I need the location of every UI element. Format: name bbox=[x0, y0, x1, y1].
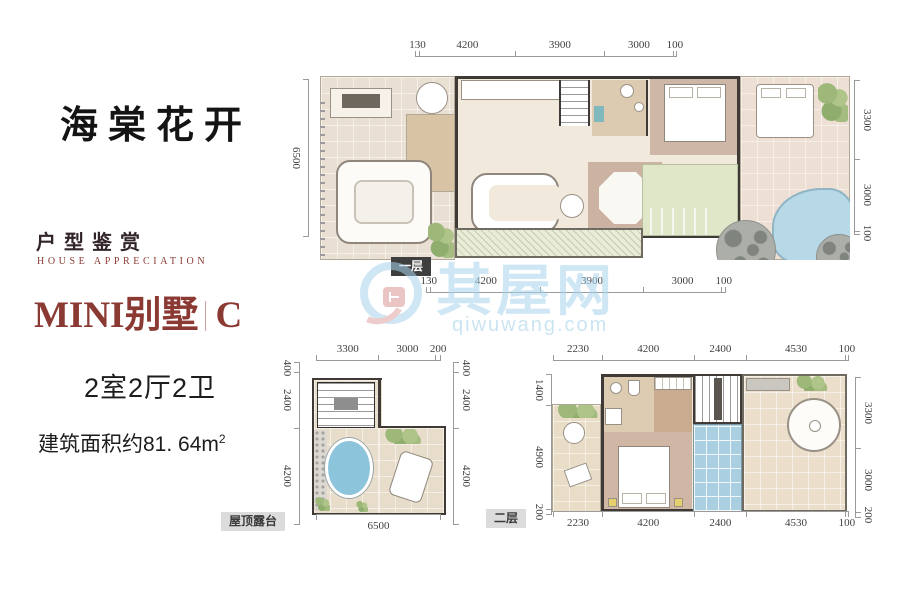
floorplan-page: { "page": { "background": "#ffffff" }, "… bbox=[0, 0, 900, 600]
dim-label: 6500 bbox=[290, 147, 302, 169]
dim-label: 3000 bbox=[628, 39, 650, 51]
floor2-left-ruler: 14004900200 bbox=[538, 374, 552, 515]
floor1-label-badge: 一层 bbox=[391, 257, 431, 276]
yard-fence bbox=[320, 102, 325, 260]
roof-plants bbox=[356, 500, 368, 512]
nightstand bbox=[608, 498, 617, 507]
dim-segment: 3300 bbox=[854, 80, 860, 159]
planting-strip bbox=[455, 228, 643, 258]
roof-notch-wall bbox=[378, 378, 381, 428]
dim-label: 100 bbox=[861, 225, 873, 242]
pillow bbox=[646, 493, 666, 504]
dim-label: 3000 bbox=[862, 469, 874, 491]
floor1-right-ruler: 33003000100 bbox=[854, 80, 868, 235]
dim-label: 6500 bbox=[368, 520, 390, 532]
terrace-plants bbox=[818, 78, 848, 122]
floor2-top-ruler: 2230420024004530100 bbox=[553, 344, 849, 361]
living-sofa-inner bbox=[489, 185, 561, 221]
dim-label: 100 bbox=[839, 343, 856, 355]
dim-segment: 200 bbox=[855, 512, 861, 518]
dim-label: 3000 bbox=[671, 275, 693, 287]
dim-label: 4900 bbox=[533, 446, 545, 468]
dim-label: 3300 bbox=[862, 402, 874, 424]
dim-label: 4200 bbox=[637, 343, 659, 355]
dim-label: 200 bbox=[533, 504, 545, 521]
yard-table bbox=[342, 94, 380, 108]
dim-segment: 2400 bbox=[694, 355, 747, 361]
floor1-top-ruler: 130420039003000100 bbox=[415, 40, 677, 57]
dim-label: 4200 bbox=[456, 39, 478, 51]
shower-tray bbox=[594, 106, 604, 122]
hallway-floor2 bbox=[654, 390, 692, 432]
rooms-summary: 2室2厅2卫 bbox=[84, 366, 216, 405]
floor2-label-badge: 二层 bbox=[486, 509, 526, 528]
dim-segment: 3300 bbox=[316, 355, 378, 361]
dim-segment: 4200 bbox=[294, 428, 300, 525]
dim-label: 100 bbox=[839, 517, 856, 529]
dim-segment: 2230 bbox=[553, 355, 602, 361]
unit-title: MINI别墅C bbox=[34, 284, 242, 338]
dim-label: 4530 bbox=[785, 517, 807, 529]
building-area-text: 建筑面积约81. 64m2 bbox=[38, 428, 226, 458]
dim-segment: 400 bbox=[294, 362, 300, 372]
dim-segment: 4200 bbox=[453, 428, 459, 525]
wardrobe bbox=[654, 377, 692, 390]
balcony-table bbox=[563, 422, 585, 444]
dim-label: 200 bbox=[862, 507, 874, 524]
dim-segment: 100 bbox=[845, 511, 849, 517]
dim-segment: 400 bbox=[453, 362, 459, 372]
dim-label: 4200 bbox=[637, 517, 659, 529]
dim-label: 4200 bbox=[475, 275, 497, 287]
dim-segment: 2400 bbox=[294, 372, 300, 428]
dim-segment: 1400 bbox=[546, 374, 552, 405]
round-planter bbox=[416, 82, 448, 114]
roof-label-badge: 屋顶露台 bbox=[221, 512, 285, 531]
dim-segment: 3900 bbox=[540, 287, 642, 293]
dim-segment: 4530 bbox=[746, 511, 845, 517]
roof-plants bbox=[382, 429, 422, 444]
planter-center bbox=[809, 420, 821, 432]
dim-label: 400 bbox=[281, 359, 293, 376]
roof-bottom-ruler: 6500 bbox=[316, 514, 441, 531]
terrace-mat bbox=[746, 378, 790, 391]
dim-segment: 3000 bbox=[854, 159, 860, 231]
kitchen-counter bbox=[461, 80, 573, 100]
dim-label: 3300 bbox=[861, 109, 873, 131]
section-title-cn: 户型鉴赏 bbox=[36, 226, 148, 255]
stairs-floor1 bbox=[559, 80, 590, 126]
dim-segment: 4200 bbox=[430, 287, 540, 293]
stair-rail bbox=[714, 378, 722, 420]
floor2-bottom-ruler: 2230420024004530100 bbox=[553, 511, 849, 528]
toilet-floor2 bbox=[628, 380, 640, 396]
dim-segment: 4200 bbox=[602, 511, 693, 517]
nightstand bbox=[674, 498, 683, 507]
dim-label: 2400 bbox=[709, 517, 731, 529]
unit-name: MINI别墅 bbox=[34, 295, 198, 336]
dim-label: 4200 bbox=[281, 465, 293, 487]
dim-segment: 100 bbox=[721, 287, 726, 293]
unit-title-divider bbox=[205, 301, 206, 331]
dim-label: 3000 bbox=[396, 343, 418, 355]
garden-steps bbox=[650, 208, 714, 235]
area-value: 建筑面积约81. 64m bbox=[38, 433, 219, 456]
shower-floor2 bbox=[605, 408, 622, 425]
floor1-plan bbox=[320, 76, 850, 260]
stair-landing bbox=[334, 398, 358, 410]
dim-label: 130 bbox=[409, 39, 426, 51]
pillow bbox=[786, 88, 806, 98]
section-title-en: HOUSE APPRECIATION bbox=[37, 256, 208, 267]
roof-right-ruler: 40024004200 bbox=[453, 362, 467, 525]
dim-label: 4530 bbox=[785, 343, 807, 355]
dim-label: 3900 bbox=[581, 275, 603, 287]
dim-segment: 3900 bbox=[515, 51, 604, 57]
dim-label: 100 bbox=[667, 39, 684, 51]
dim-label: 400 bbox=[460, 359, 472, 376]
dim-segment: 4200 bbox=[419, 51, 515, 57]
roof-terrace-plan bbox=[312, 368, 449, 515]
dim-segment: 4530 bbox=[746, 355, 845, 361]
dim-segment: 100 bbox=[673, 51, 677, 57]
balcony bbox=[552, 404, 601, 512]
sink-floor2 bbox=[610, 382, 622, 394]
dim-segment: 3300 bbox=[855, 377, 861, 448]
project-title: 海棠花开 bbox=[60, 94, 252, 149]
dim-label: 100 bbox=[715, 275, 732, 287]
dim-label: 2230 bbox=[567, 517, 589, 529]
dim-segment: 4200 bbox=[602, 355, 693, 361]
dim-segment: 100 bbox=[845, 355, 849, 361]
skylight-glass bbox=[693, 424, 742, 512]
terrace2-plants bbox=[794, 376, 828, 391]
dim-segment: 200 bbox=[546, 509, 552, 515]
dim-segment: 3000 bbox=[378, 355, 435, 361]
floor1-left-ruler: 6500 bbox=[295, 79, 309, 237]
dim-segment: 100 bbox=[854, 231, 860, 235]
yard-plants bbox=[428, 218, 454, 258]
car-roof bbox=[354, 180, 414, 224]
dim-segment: 6500 bbox=[316, 514, 441, 520]
sink-floor1 bbox=[634, 102, 644, 112]
dim-segment: 2400 bbox=[453, 372, 459, 428]
dim-label: 130 bbox=[420, 275, 437, 287]
dim-label: 3300 bbox=[337, 343, 359, 355]
dim-label: 3900 bbox=[549, 39, 571, 51]
dim-label: 2400 bbox=[709, 343, 731, 355]
dim-label: 2230 bbox=[567, 343, 589, 355]
unit-variant: C bbox=[215, 295, 242, 336]
dim-segment: 3000 bbox=[855, 448, 861, 512]
pillow bbox=[669, 87, 693, 98]
dim-label: 2400 bbox=[281, 389, 293, 411]
dim-segment: 4900 bbox=[546, 405, 552, 509]
watermark-house-icon bbox=[383, 287, 405, 307]
floor2-plan bbox=[552, 374, 847, 515]
dim-label: 1400 bbox=[533, 379, 545, 401]
dim-segment: 6500 bbox=[303, 79, 309, 237]
balcony-plants bbox=[554, 405, 599, 418]
pillow bbox=[622, 493, 642, 504]
dim-segment: 200 bbox=[435, 355, 441, 361]
dim-segment: 3000 bbox=[643, 287, 722, 293]
area-superscript: 2 bbox=[219, 432, 226, 446]
floor2-right-ruler: 33003000200 bbox=[855, 377, 869, 518]
dim-label: 4200 bbox=[460, 465, 472, 487]
dim-label: 2400 bbox=[460, 389, 472, 411]
dim-segment: 2230 bbox=[553, 511, 602, 517]
roof-left-ruler: 40024004200 bbox=[286, 362, 300, 525]
pillow bbox=[697, 87, 721, 98]
dim-segment: 3000 bbox=[604, 51, 673, 57]
dim-label: 200 bbox=[430, 343, 447, 355]
roof-plants bbox=[315, 496, 330, 511]
watermark-swoosh-icon bbox=[347, 271, 411, 331]
dim-label: 3000 bbox=[861, 184, 873, 206]
dim-segment: 2400 bbox=[694, 511, 747, 517]
side-table bbox=[560, 194, 584, 218]
roof-top-ruler: 33003000200 bbox=[316, 344, 441, 361]
pillow bbox=[761, 88, 781, 98]
spa-tub bbox=[325, 438, 373, 498]
toilet-floor1 bbox=[620, 84, 634, 98]
floor1-bottom-ruler: 130420039003000100 bbox=[426, 276, 726, 293]
watermark-domain: qiwuwang.com bbox=[452, 314, 608, 337]
